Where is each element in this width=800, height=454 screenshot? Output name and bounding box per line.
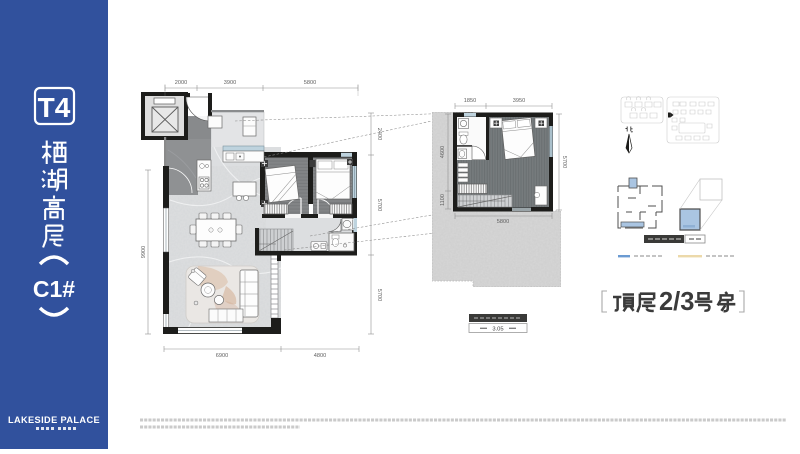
svg-text:5800: 5800	[304, 80, 316, 86]
svg-text:5800: 5800	[497, 219, 509, 225]
svg-text:1100: 1100	[440, 194, 446, 206]
svg-text:1850: 1850	[464, 98, 476, 104]
svg-text:5700: 5700	[561, 156, 567, 168]
svg-text:4800: 4800	[314, 353, 326, 359]
svg-text:2000: 2000	[175, 80, 187, 86]
svg-text:2400: 2400	[376, 128, 382, 140]
svg-text:6900: 6900	[216, 353, 228, 359]
svg-text:2/3: 2/3	[659, 288, 694, 316]
svg-text:3.05: 3.05	[492, 326, 503, 332]
svg-text:3950: 3950	[513, 98, 525, 104]
svg-text:5700: 5700	[376, 289, 382, 301]
svg-text:9900: 9900	[141, 246, 147, 258]
svg-text:5700: 5700	[376, 199, 382, 211]
svg-text:4600: 4600	[440, 146, 446, 158]
svg-text:3900: 3900	[224, 80, 236, 86]
